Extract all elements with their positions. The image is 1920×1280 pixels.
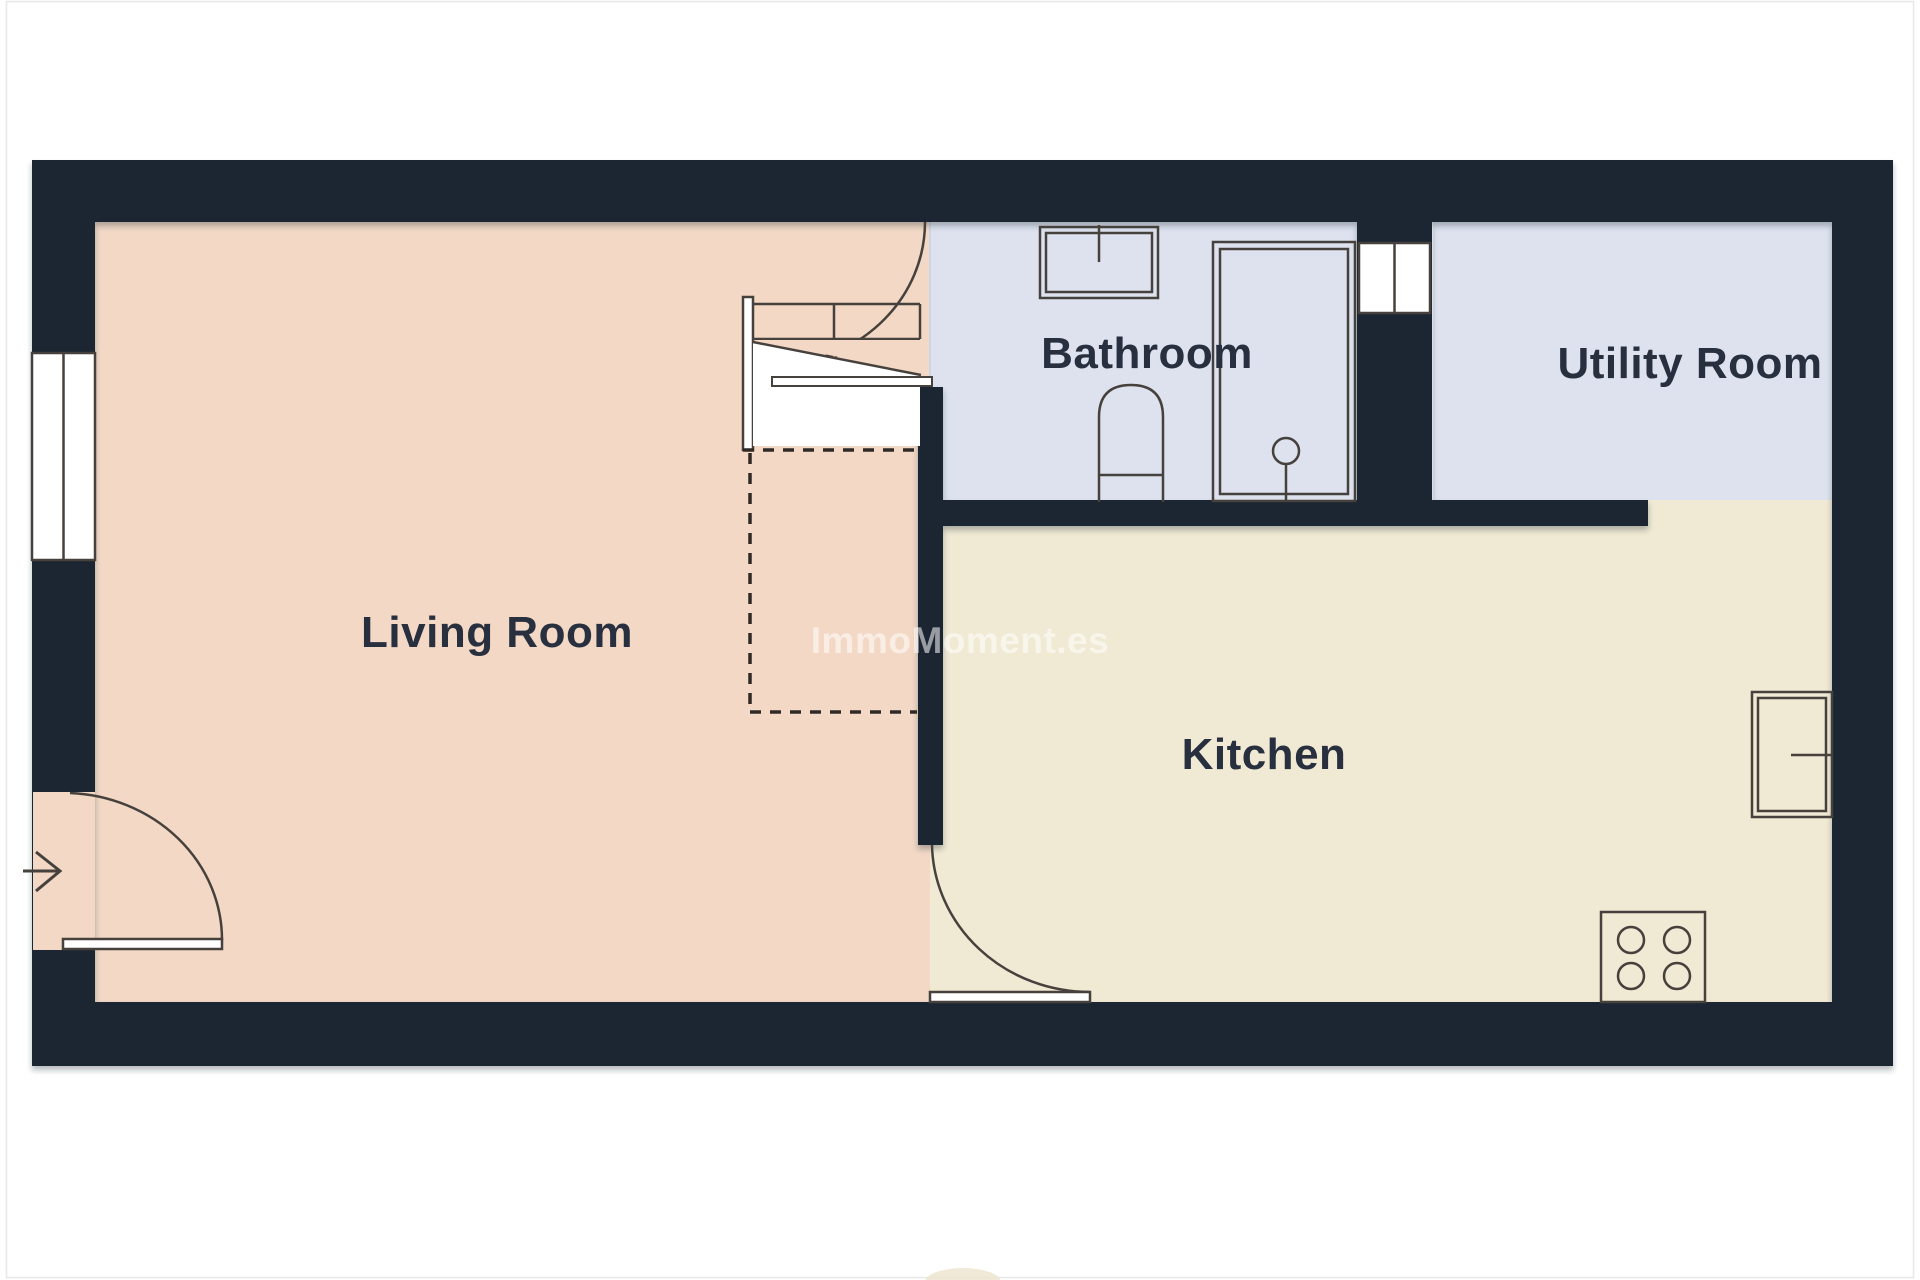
bathroom-label: Bathroom xyxy=(1041,329,1253,378)
wall-living-kitchen-stub xyxy=(918,387,943,845)
kitchen-door-leaf xyxy=(930,992,1090,1002)
utility-room-door xyxy=(1359,243,1430,313)
kitchen-label: Kitchen xyxy=(1182,730,1347,779)
floor-plan-svg: Living Room Bathroom Utility Room Kitche… xyxy=(0,0,1920,1280)
watermark-text: ImmoMoment.es xyxy=(811,620,1109,661)
wall-bottom xyxy=(32,1002,1893,1066)
kitchen-floor xyxy=(930,500,1832,1002)
wall-bathroom-kitchen xyxy=(918,500,1648,526)
floor-plan-image: Living Room Bathroom Utility Room Kitche… xyxy=(0,0,1920,1280)
left-wall-window xyxy=(32,353,95,560)
stairs-stringer xyxy=(743,297,753,450)
bottom-edge-artifact xyxy=(925,1268,1001,1280)
wall-top xyxy=(32,160,1893,222)
living-room-label: Living Room xyxy=(361,608,633,657)
stairs-landing-edge xyxy=(772,377,932,386)
utility-room-label: Utility Room xyxy=(1557,339,1822,388)
entry-door-leaf xyxy=(63,939,222,949)
wall-right xyxy=(1832,160,1893,1066)
